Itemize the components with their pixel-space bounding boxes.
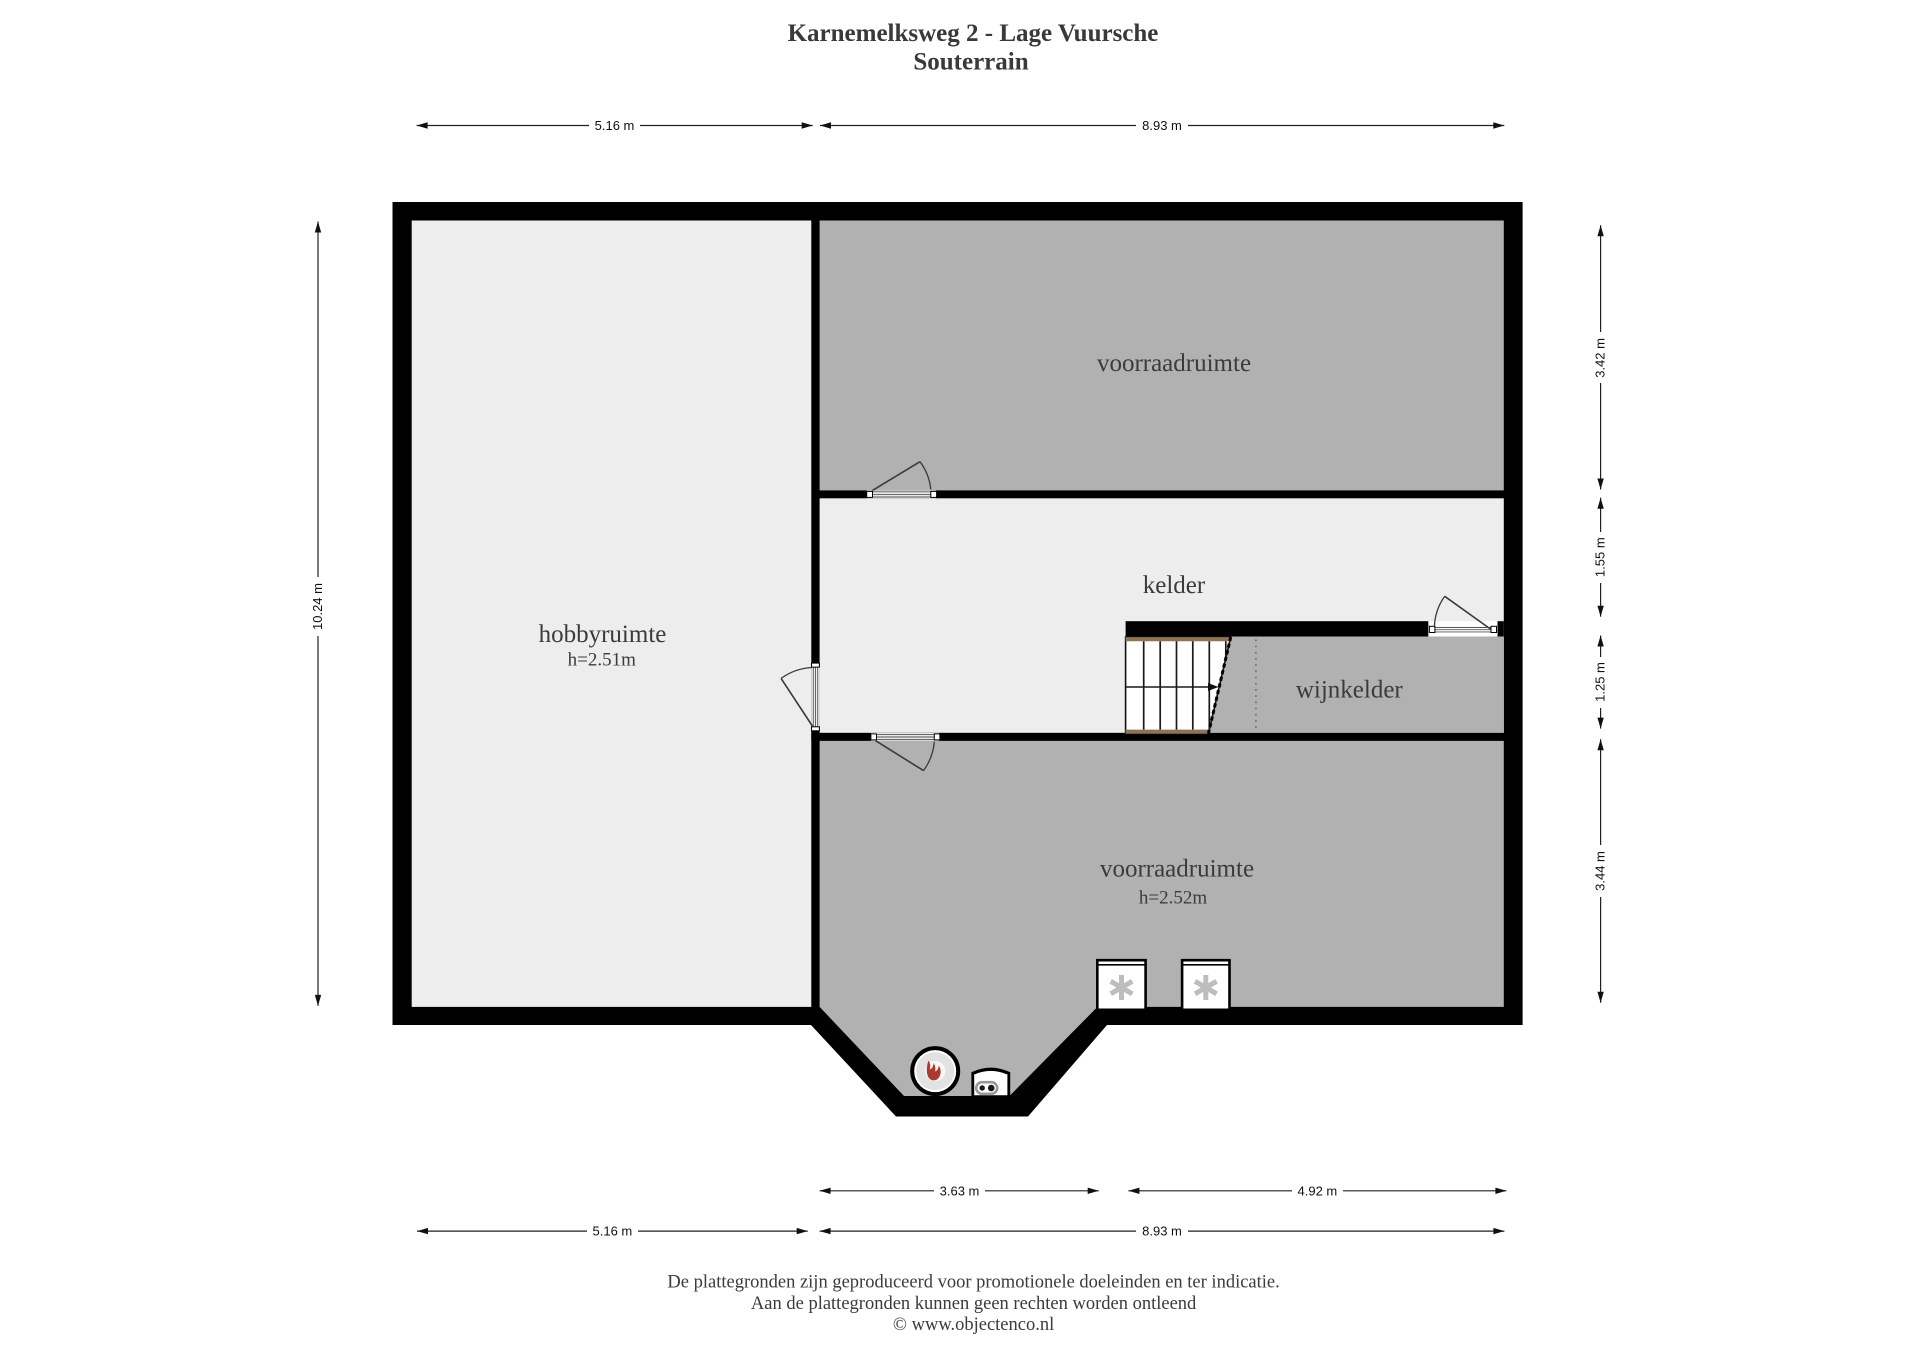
svg-text:3.44 m: 3.44 m	[1593, 851, 1608, 891]
svg-text:voorraadruimte: voorraadruimte	[1100, 856, 1254, 883]
svg-text:10.24 m: 10.24 m	[310, 583, 325, 630]
svg-text:3.63 m: 3.63 m	[940, 1183, 980, 1198]
svg-text:De plattegronden zijn geproduc: De plattegronden zijn geproduceerd voor …	[667, 1272, 1279, 1292]
svg-text:Souterrain: Souterrain	[913, 49, 1028, 76]
svg-text:5.16 m: 5.16 m	[595, 118, 635, 133]
svg-text:1.25 m: 1.25 m	[1593, 662, 1608, 702]
svg-text:Aan de plattegronden kunnen ge: Aan de plattegronden kunnen geen rechten…	[751, 1294, 1197, 1314]
svg-text:3.42 m: 3.42 m	[1593, 338, 1608, 378]
svg-text:voorraadruimte: voorraadruimte	[1097, 350, 1251, 377]
svg-text:8.93 m: 8.93 m	[1142, 1224, 1182, 1239]
svg-text:h=2.52m: h=2.52m	[1139, 888, 1207, 909]
svg-text:hobbyruimte: hobbyruimte	[539, 621, 667, 648]
svg-text:kelder: kelder	[1143, 572, 1206, 599]
svg-text:wijnkelder: wijnkelder	[1296, 677, 1404, 704]
svg-text:1.55 m: 1.55 m	[1593, 537, 1608, 577]
svg-text:© www.objectenco.nl: © www.objectenco.nl	[893, 1315, 1054, 1335]
svg-text:4.92 m: 4.92 m	[1298, 1183, 1338, 1198]
svg-text:Karnemelksweg 2 - Lage Vuursch: Karnemelksweg 2 - Lage Vuursche	[788, 20, 1159, 47]
svg-text:5.16 m: 5.16 m	[593, 1224, 633, 1239]
svg-text:h=2.51m: h=2.51m	[568, 650, 636, 671]
svg-text:8.93 m: 8.93 m	[1142, 118, 1182, 133]
